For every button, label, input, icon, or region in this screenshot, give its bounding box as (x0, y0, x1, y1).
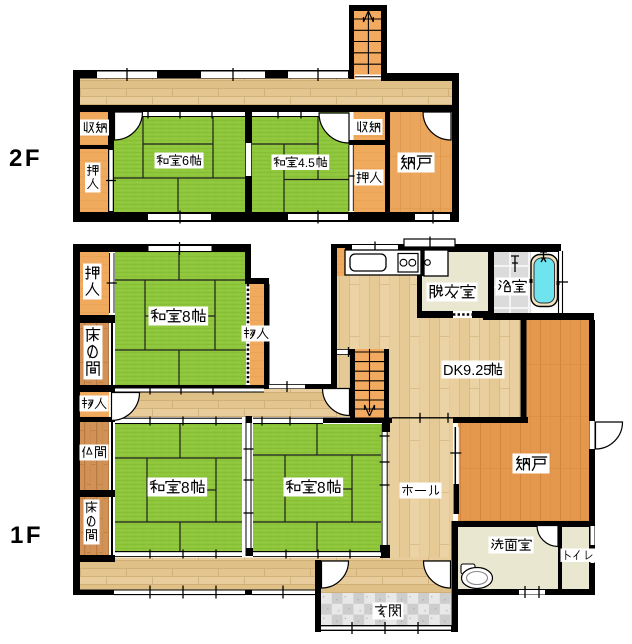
svg-text:2F: 2F (9, 145, 42, 172)
svg-text:1F: 1F (10, 522, 43, 549)
svg-text:8: 8 (182, 309, 191, 326)
svg-text:8: 8 (317, 480, 326, 497)
svg-text:DK9.25: DK9.25 (443, 363, 491, 379)
svg-text:6: 6 (182, 154, 189, 168)
svg-text:8: 8 (181, 480, 190, 497)
svg-text:4.5: 4.5 (298, 156, 315, 170)
